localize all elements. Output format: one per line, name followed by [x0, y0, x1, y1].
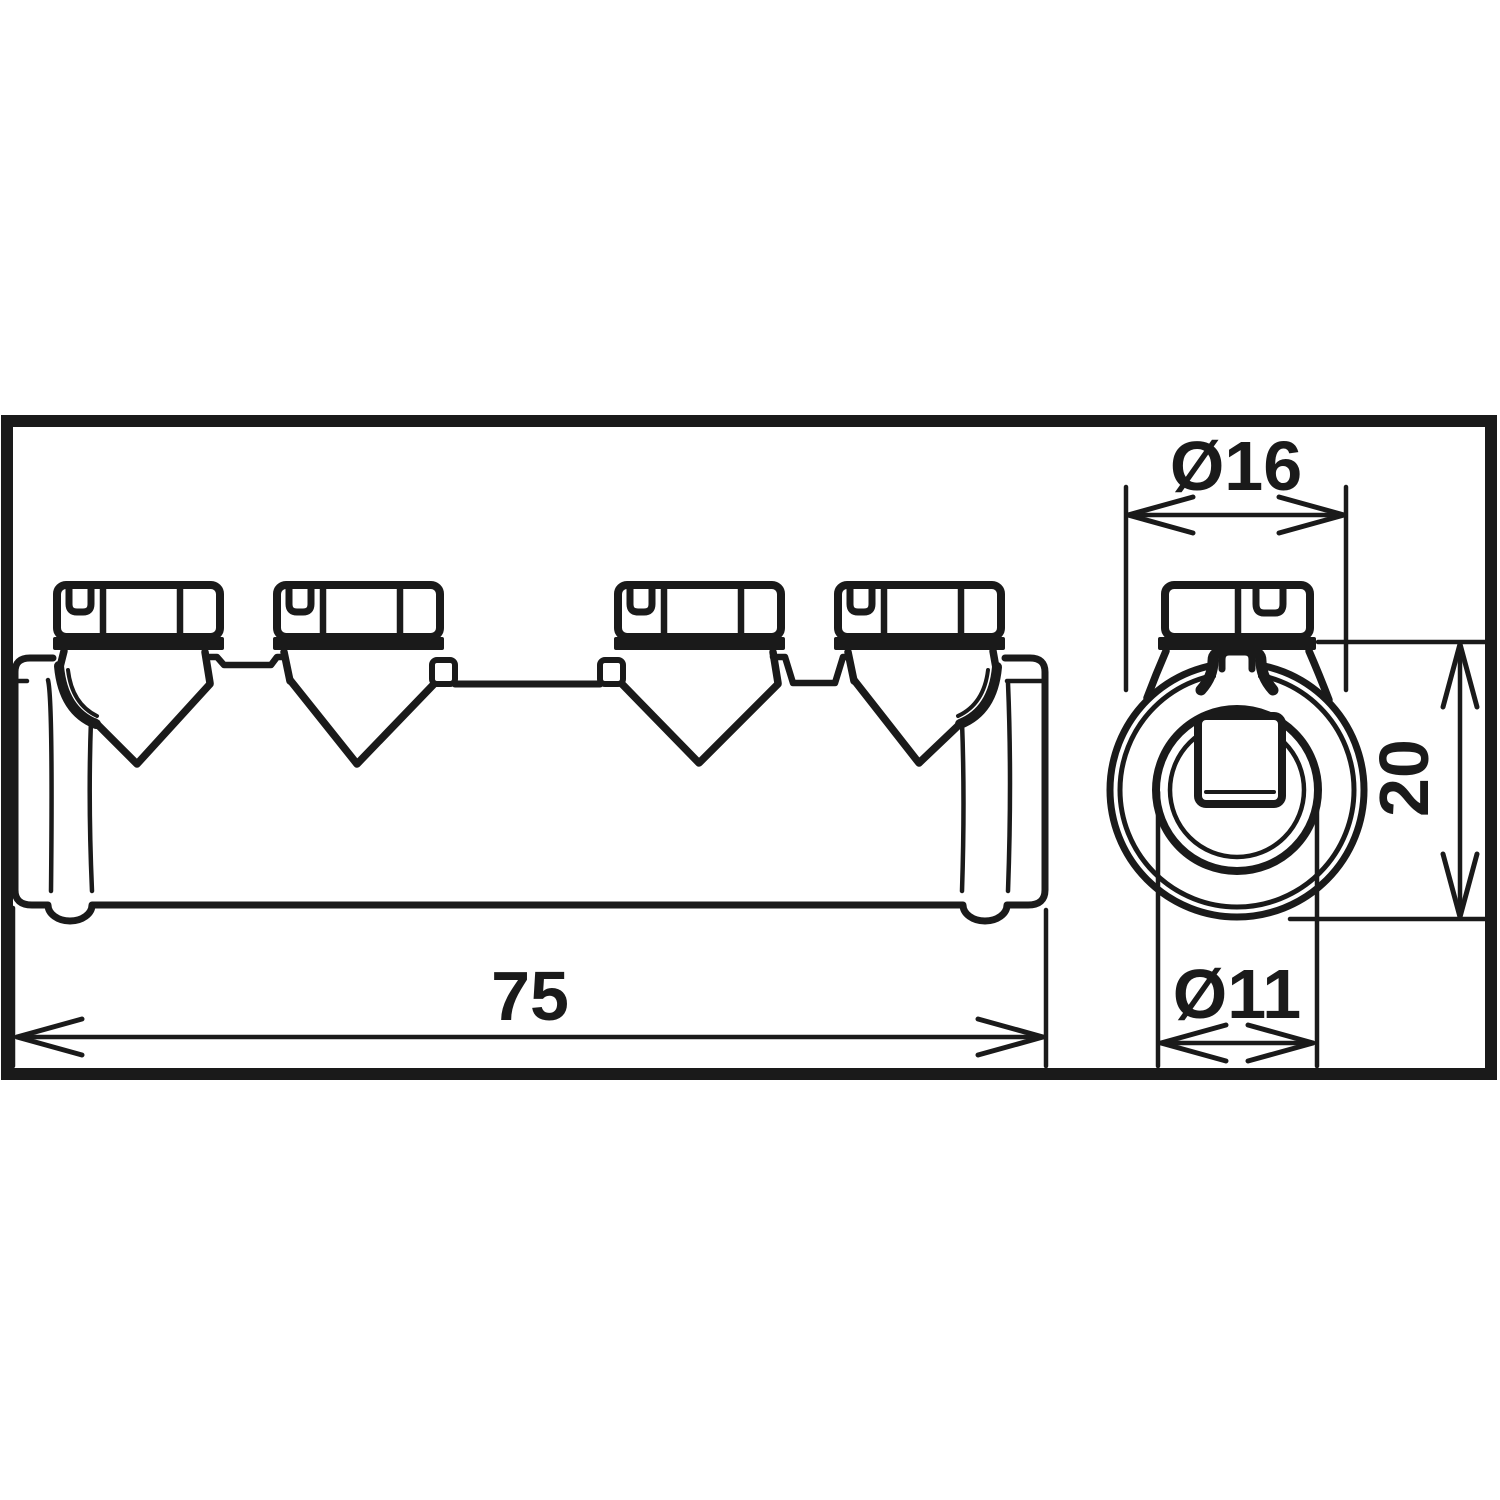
right-endcap-arc — [1008, 683, 1010, 891]
dim-label-height: 20 — [1365, 739, 1443, 817]
nut4-flange — [834, 637, 1005, 650]
cone1-v-groove — [95, 684, 210, 764]
cone4-v-groove — [854, 680, 961, 763]
dim-label-bore-diameter: Ø11 — [1173, 955, 1301, 1033]
clamp-cone-2 — [284, 652, 434, 764]
end-view — [1110, 585, 1364, 917]
plateau-tab-right — [600, 660, 623, 684]
cone3-v-groove — [622, 684, 778, 763]
clamp-screw-nut-4 — [834, 585, 1005, 650]
cone2-v-groove — [290, 680, 434, 764]
clamp-screw-nut-2 — [273, 585, 444, 650]
right-inner-arc — [962, 722, 964, 891]
dim-label-outer-diameter: Ø16 — [1170, 427, 1302, 505]
valley-between-cone1-cone2 — [207, 657, 283, 665]
end-view-nut — [1158, 585, 1316, 650]
clamp-cone-3 — [622, 652, 778, 763]
nut3-flange — [614, 637, 785, 650]
left-inner-arc — [90, 720, 92, 891]
clamp-cone-4 — [848, 651, 997, 763]
nut1-flange — [53, 637, 224, 650]
dimension-labels: 75 Ø16 20 Ø11 — [491, 427, 1443, 1035]
clamp-screw-nut-1 — [53, 585, 224, 650]
clamp-screw-nut-3 — [614, 585, 785, 650]
technical-drawing-page: 75 Ø16 20 Ø11 — [0, 0, 1500, 1500]
side-view — [15, 585, 1045, 921]
dim-label-length: 75 — [491, 957, 569, 1035]
drawing-canvas: 75 Ø16 20 Ø11 — [0, 0, 1500, 1500]
nut2-flange — [273, 637, 444, 650]
valley-between-cone3-cone4 — [773, 657, 848, 683]
end-nut-flange — [1158, 637, 1316, 650]
plateau-tab-left — [432, 660, 455, 684]
left-endcap-arc — [48, 680, 52, 891]
clamp-body-outline — [15, 658, 1045, 921]
clamp-cone-1 — [59, 651, 210, 764]
